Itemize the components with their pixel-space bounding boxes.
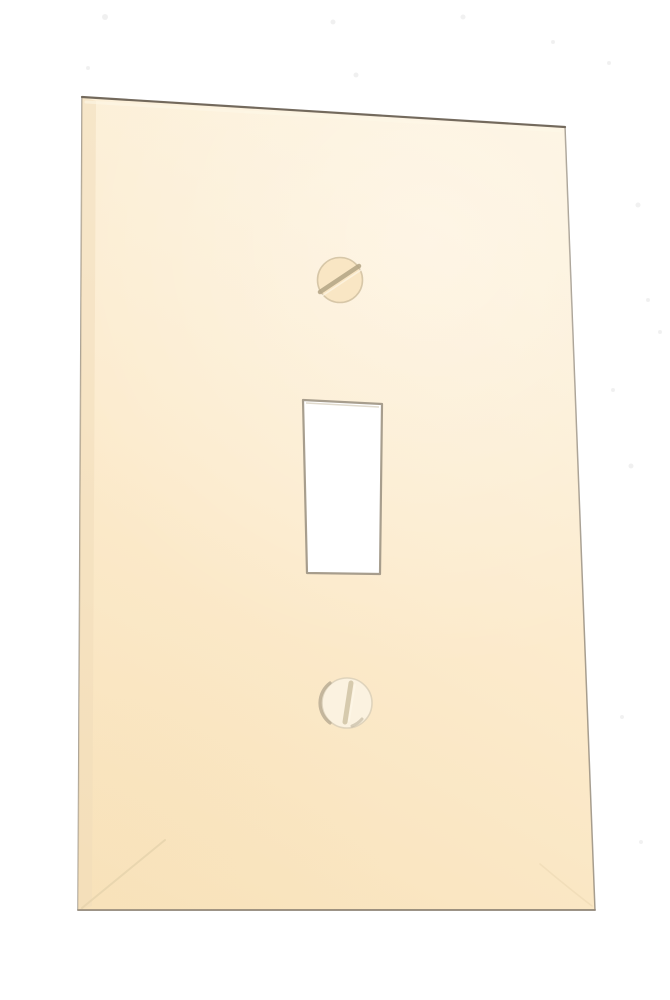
wall-plate-photo-canvas: [0, 0, 670, 1000]
speckle: [646, 298, 650, 302]
product-photo: [0, 0, 670, 1000]
speckle: [611, 388, 615, 392]
toggle-cutout: [303, 400, 382, 574]
speckle: [658, 330, 662, 334]
bottom-screw: [320, 678, 372, 728]
speckle: [636, 203, 641, 208]
speckle: [629, 464, 634, 469]
speckle: [86, 66, 90, 70]
speckle: [607, 61, 611, 65]
speckle: [639, 840, 643, 844]
speckle: [461, 15, 466, 20]
speckle: [551, 40, 555, 44]
speckle: [354, 73, 359, 78]
top-screw: [318, 258, 363, 303]
speckle: [620, 715, 624, 719]
speckle: [331, 20, 336, 25]
speckle: [102, 14, 108, 20]
